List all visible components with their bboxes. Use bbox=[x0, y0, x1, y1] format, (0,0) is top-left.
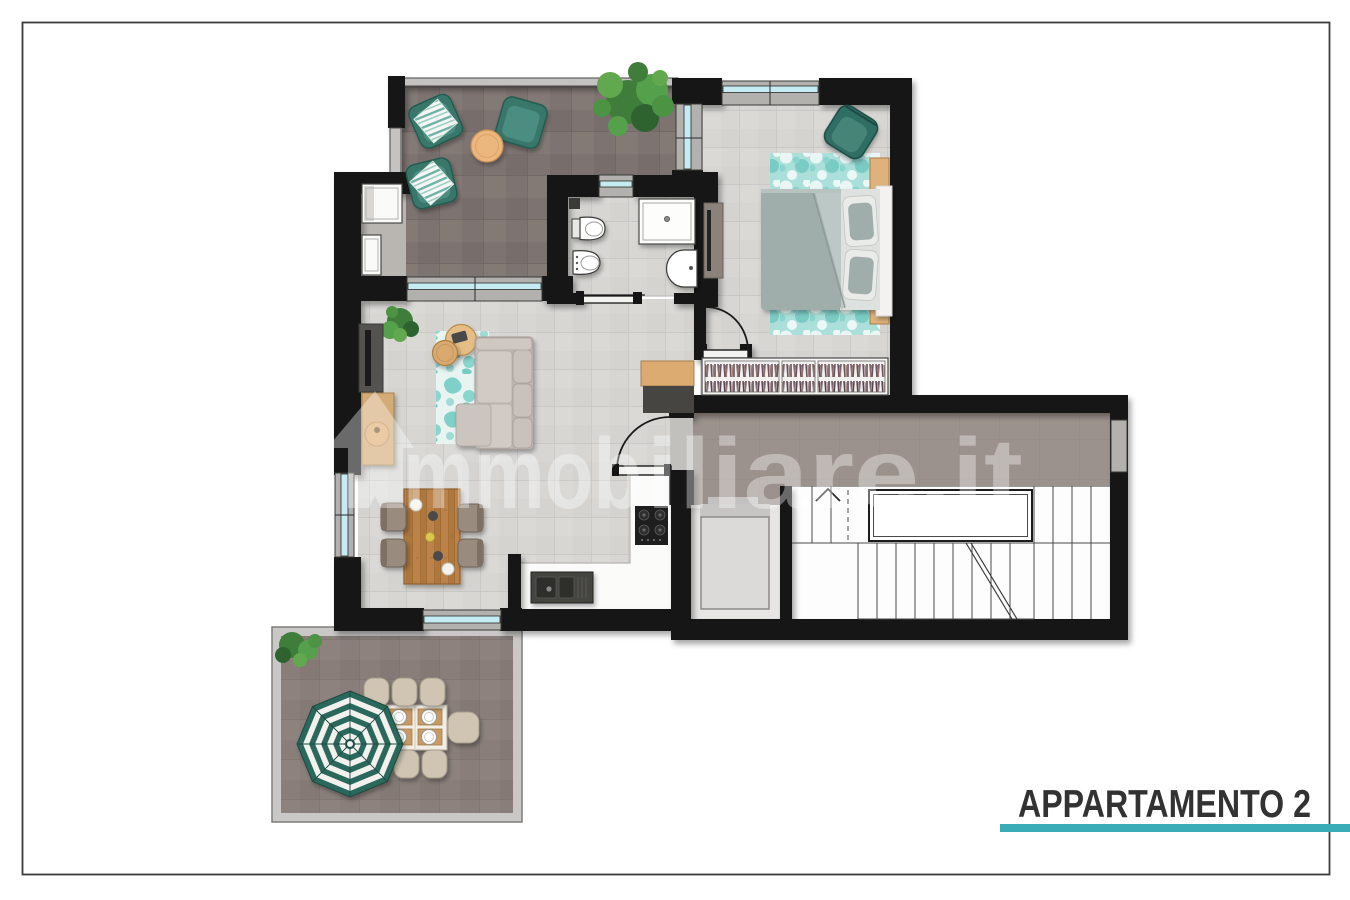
svg-text:APPARTAMENTO 2: APPARTAMENTO 2 bbox=[1018, 783, 1311, 826]
svg-text:mmob: mmob bbox=[403, 418, 642, 530]
svg-text:iliare.it: iliare.it bbox=[646, 418, 1023, 530]
